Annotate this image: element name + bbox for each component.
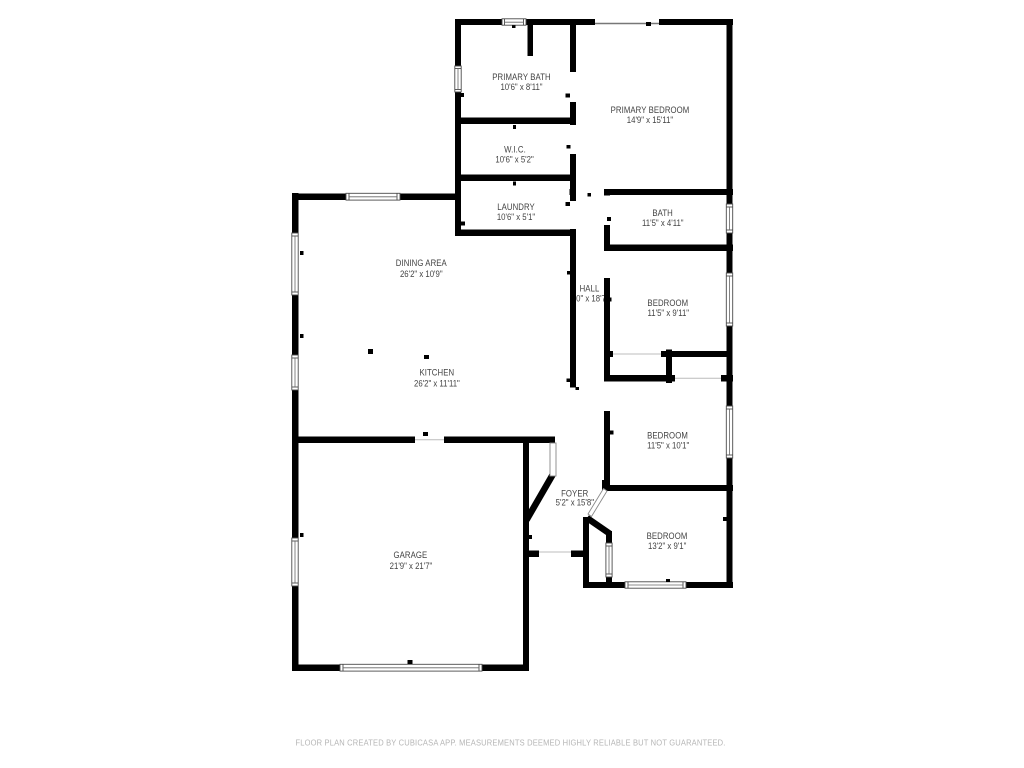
svg-text:FLOOR PLAN CREATED BY CUBICASA: FLOOR PLAN CREATED BY CUBICASA APP. MEAS… xyxy=(295,738,725,748)
svg-text:GARAGE: GARAGE xyxy=(394,549,428,560)
svg-text:10'6" x 8'11": 10'6" x 8'11" xyxy=(500,81,542,92)
svg-text:DINING AREA: DINING AREA xyxy=(396,257,447,268)
svg-text:KITCHEN: KITCHEN xyxy=(419,367,454,378)
svg-text:13'2" x 9'1": 13'2" x 9'1" xyxy=(648,540,686,551)
svg-text:10'6" x 5'2": 10'6" x 5'2" xyxy=(495,154,533,165)
svg-text:11'5" x 9'11": 11'5" x 9'11" xyxy=(648,307,690,318)
svg-text:26'2" x 11'11": 26'2" x 11'11" xyxy=(414,378,460,389)
svg-text:21'9" x 21'7": 21'9" x 21'7" xyxy=(390,560,433,571)
svg-text:14'9" x 15'11": 14'9" x 15'11" xyxy=(627,114,673,125)
svg-text:5'2" x 15'8": 5'2" x 15'8" xyxy=(556,497,594,508)
svg-text:11'5" x 10'1": 11'5" x 10'1" xyxy=(647,440,689,451)
svg-text:26'2" x 10'9": 26'2" x 10'9" xyxy=(400,268,443,279)
svg-text:10'6" x 5'1": 10'6" x 5'1" xyxy=(497,211,535,222)
svg-text:11'5" x 4'11": 11'5" x 4'11" xyxy=(642,217,684,228)
svg-text:5'0" x 18'7": 5'0" x 18'7" xyxy=(570,293,608,304)
